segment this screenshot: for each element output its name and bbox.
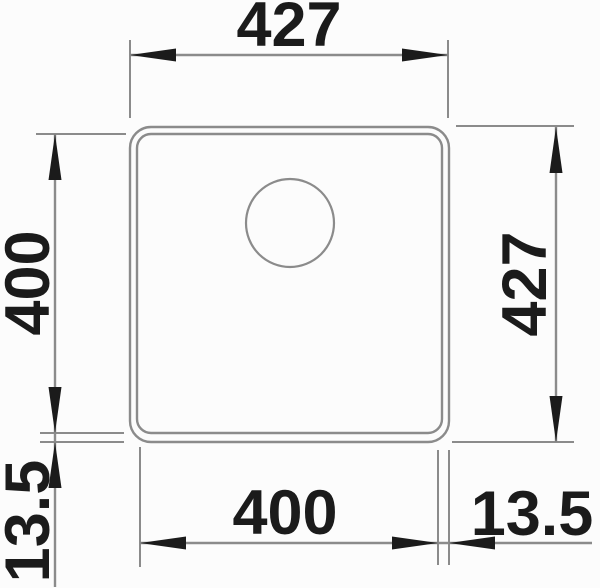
arrowhead-up-icon bbox=[49, 134, 62, 180]
arrowhead-right-icon bbox=[402, 49, 448, 62]
arrowhead-down-icon bbox=[550, 396, 563, 442]
dim-label-left-height: 400 bbox=[0, 230, 63, 335]
arrowhead-up-icon bbox=[550, 127, 563, 173]
dim-label-bottom-rim: 13.5 bbox=[471, 479, 594, 549]
dim-bottom-width: 400 13.5 bbox=[139, 447, 593, 567]
dim-right-height: 427 bbox=[452, 126, 574, 442]
sink-outline bbox=[130, 127, 449, 442]
dim-label-top-width: 427 bbox=[236, 0, 341, 60]
dim-label-right-height: 427 bbox=[490, 231, 560, 336]
arrowhead-right-icon bbox=[392, 537, 438, 550]
dim-label-bottom-width: 400 bbox=[232, 478, 337, 548]
drain-hole-circle bbox=[246, 179, 334, 267]
dim-left-height: 400 13.5 bbox=[0, 134, 126, 587]
sink-dimension-drawing: 427 400 13.5 427 bbox=[0, 0, 600, 588]
sink-outer-edge bbox=[130, 127, 449, 442]
arrowhead-left-icon bbox=[130, 49, 176, 62]
technical-drawing-canvas: 427 400 13.5 427 bbox=[0, 0, 600, 588]
arrowhead-left-icon bbox=[140, 537, 186, 550]
arrowhead-down-icon bbox=[49, 387, 62, 433]
dim-label-left-rim: 13.5 bbox=[0, 460, 63, 583]
dim-top-width: 427 bbox=[130, 0, 448, 118]
